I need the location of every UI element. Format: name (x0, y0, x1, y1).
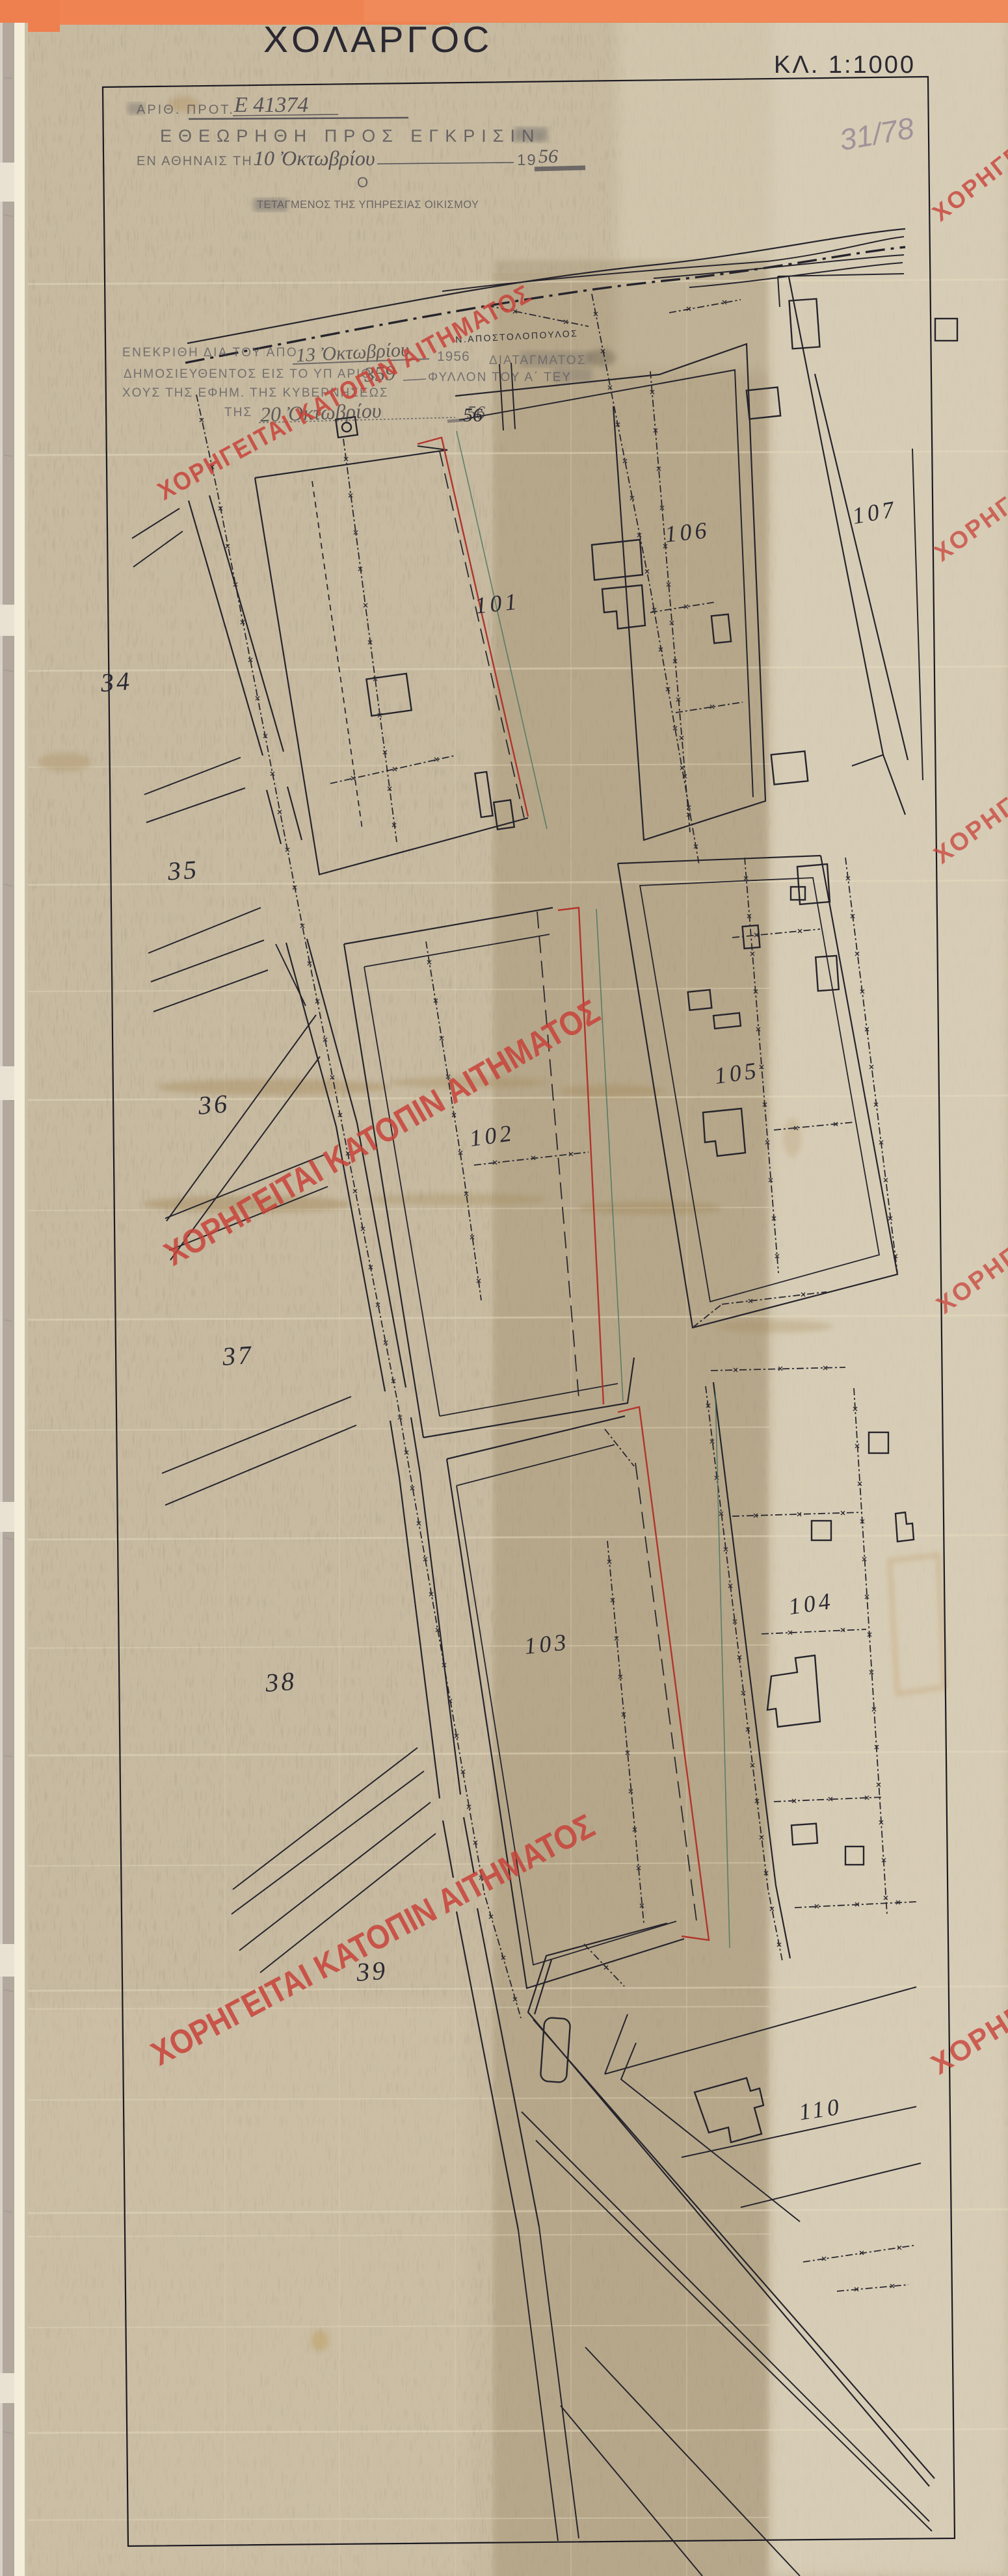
svg-text:ΦΥΛΛΟΝ ΤΟΥ Α΄ ΤΕΥ: ΦΥΛΛΟΝ ΤΟΥ Α΄ ΤΕΥ (428, 371, 572, 384)
svg-text:38: 38 (264, 1666, 298, 1698)
svg-text:101: 101 (473, 588, 521, 619)
svg-text:ΑΡΙΘ. ΠΡΟΤ.: ΑΡΙΘ. ΠΡΟΤ. (137, 103, 235, 117)
svg-text:37: 37 (220, 1340, 254, 1371)
svg-text:106: 106 (663, 517, 711, 547)
svg-text:103: 103 (523, 1629, 570, 1659)
svg-text:56: 56 (463, 404, 483, 426)
svg-text:19: 19 (517, 151, 537, 169)
svg-text:ΧΟΛΑΡΓΟC: ΧΟΛΑΡΓΟC (263, 19, 492, 60)
svg-text:36: 36 (196, 1088, 230, 1120)
svg-text:ΚΛ. 1:1000: ΚΛ. 1:1000 (774, 51, 916, 79)
svg-text:ΤΕΤΑΓΜΕΝΟΣ ΤΗΣ ΥΠΗΡΕΣΙΑΣ ΟΙΚΙΣ: ΤΕΤΑΓΜΕΝΟΣ ΤΗΣ ΥΠΗΡΕΣΙΑΣ ΟΙΚΙΣΜΟΥ (257, 199, 479, 211)
svg-text:ΕΝΕΚΡΙΘΗ ΔΙΑ ΤΟΥ ΑΠΟ: ΕΝΕΚΡΙΘΗ ΔΙΑ ΤΟΥ ΑΠΟ (122, 346, 298, 360)
svg-text:35: 35 (166, 854, 200, 886)
svg-text:34: 34 (99, 666, 133, 697)
svg-text:56: 56 (538, 146, 558, 167)
svg-text:ΤΗΣ: ΤΗΣ (224, 406, 252, 419)
svg-text:ΕΘΕΩΡΗΘΗ ΠΡΟΣ ΕΓΚΡΙΣΙΝ: ΕΘΕΩΡΗΘΗ ΠΡΟΣ ΕΓΚΡΙΣΙΝ (160, 126, 541, 146)
svg-text:ΕΝ ΑΘΗΝΑΙΣ ΤΗ.: ΕΝ ΑΘΗΝΑΙΣ ΤΗ. (137, 154, 258, 168)
svg-text:Ε 41374: Ε 41374 (233, 93, 308, 117)
svg-text:Ο: Ο (357, 174, 368, 191)
svg-text:10 Ὀκτωβρίου: 10 Ὀκτωβρίου (254, 146, 375, 170)
